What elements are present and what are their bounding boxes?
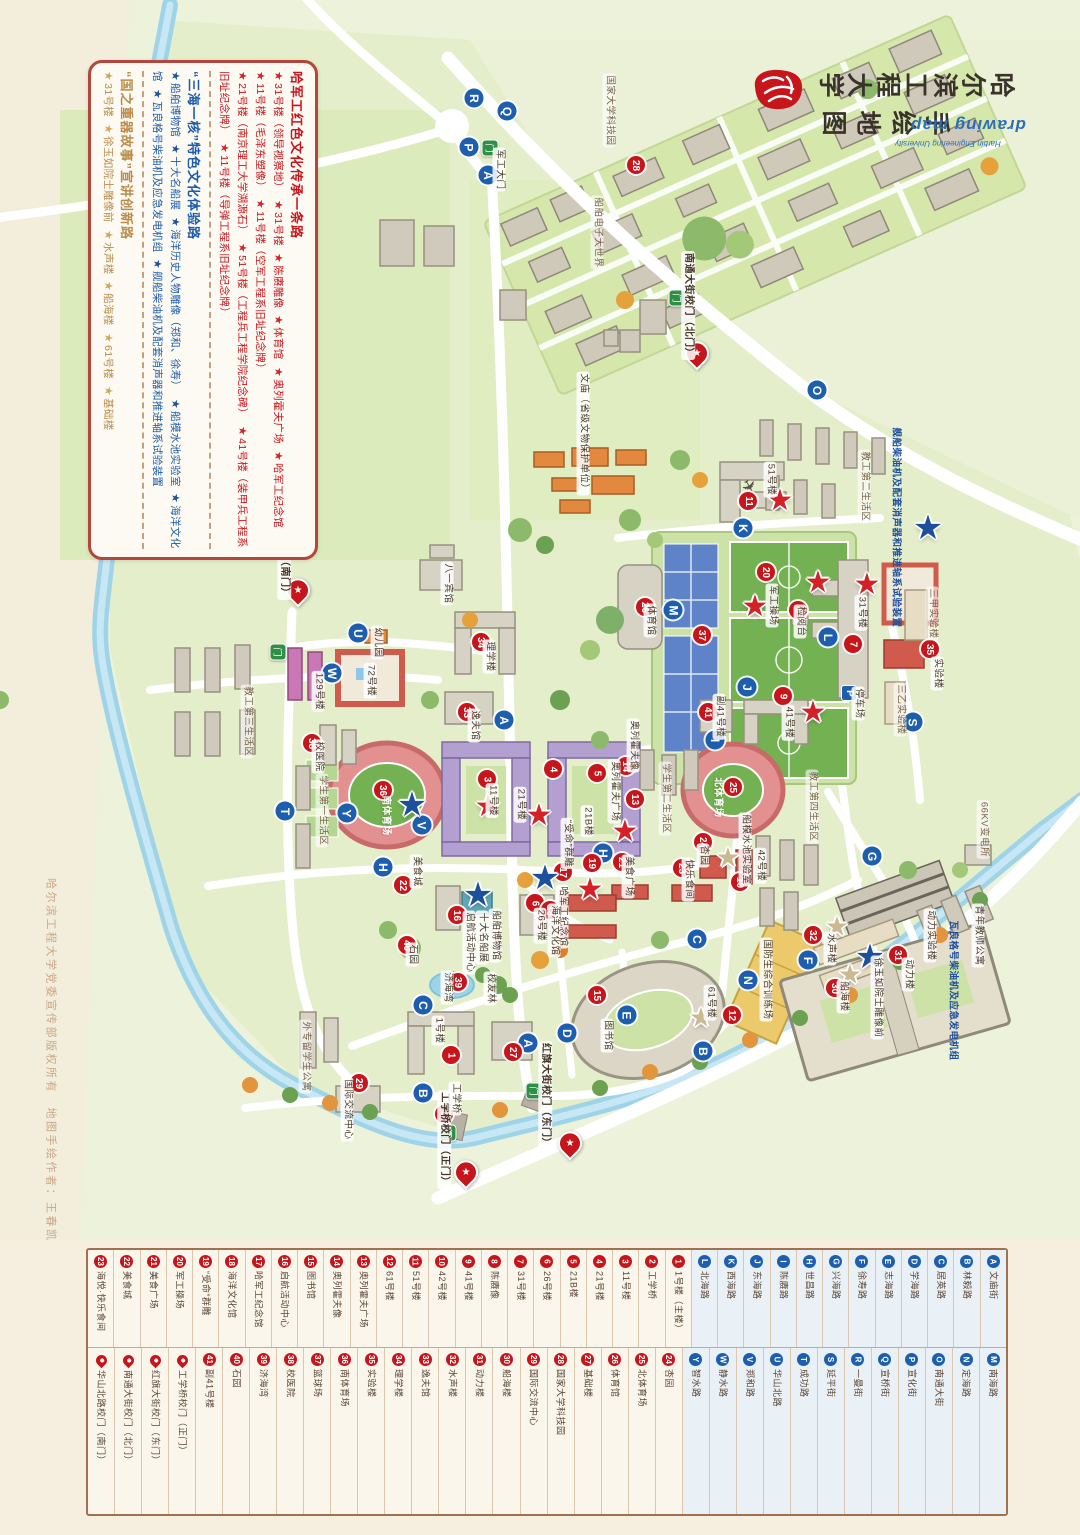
map-label: 快乐食间 xyxy=(682,857,695,906)
star-icon: ★ xyxy=(102,71,114,81)
map-label: 美食城 xyxy=(410,854,423,893)
legend-badge-text: 11 xyxy=(411,1257,420,1265)
map-label: 石园 xyxy=(406,942,419,971)
map-label: 实验楼 xyxy=(931,656,944,695)
gate-label-text: 南通大街校门（北门） xyxy=(681,251,695,360)
legend-number-badge: 39 xyxy=(257,1353,270,1366)
legend-cell-label: 实验楼 xyxy=(366,1369,376,1398)
route-stop: ★61号楼 xyxy=(102,333,114,379)
title-subtitle: Harbin Engineering University xyxy=(895,139,1001,148)
map-label-text: 129号楼 xyxy=(312,671,325,712)
legend-cell: B林毅路 xyxy=(953,1250,979,1347)
map-label: 副41号楼 xyxy=(713,694,726,745)
map-label-text: 工学桥 xyxy=(449,1081,462,1115)
legend-cell-label: 军工操场 xyxy=(174,1271,184,1309)
pin-dot xyxy=(152,1358,158,1364)
map-label-text: 徐玉如院士雕像前 xyxy=(871,955,884,1039)
building-badge-number: 16 xyxy=(452,909,463,920)
map-label-text: 北体育场 xyxy=(711,775,724,819)
map-label: 国防生综合训练场 xyxy=(760,937,773,1026)
star-icon: ★ xyxy=(102,124,114,134)
legend-cell-label: 一曼街 xyxy=(853,1369,863,1398)
legend-cell-label: 文庙街 xyxy=(988,1271,998,1300)
map-label: 十大名船展 xyxy=(476,910,489,969)
route-stop: ★船海楼 xyxy=(102,281,114,326)
map-label-text: 军工操场 xyxy=(766,583,779,627)
legend-cell-label: 31号楼 xyxy=(515,1271,525,1301)
legend-badge-text: 35 xyxy=(367,1355,376,1364)
road-badge-letter: K xyxy=(736,524,750,533)
route-stop: ★21号楼（南京理工大学溯源石） xyxy=(236,71,248,236)
map-label-text: 三甲实验楼 xyxy=(926,586,939,640)
star-icon: ★ xyxy=(254,199,266,209)
legend-cell-label: 北海路 xyxy=(699,1271,709,1300)
legend-cell-label: 理学楼 xyxy=(393,1369,403,1398)
road-badge-letter: W xyxy=(325,667,339,678)
map-key-table: 23海悦·快乐食间22美食城21美食广场20军工操场19“受命”群雕18海洋文化… xyxy=(86,1248,1008,1516)
legend-cell: 32水声楼 xyxy=(438,1348,465,1514)
map-label: 1号楼 xyxy=(432,1016,445,1051)
legend-cell: 23海悦·快乐食间 xyxy=(88,1250,113,1347)
route-stop-label: 31号楼 xyxy=(272,212,284,246)
legend-cell-label: 哈军工纪念馆 xyxy=(253,1271,263,1328)
routes-legend-box: 哈军工红色文化传承一条路★31号楼（领导视察地）★31号楼★陈赓雕像★体育馆★奥… xyxy=(88,60,318,560)
route-star-icon: ★ xyxy=(577,875,604,905)
road-badge-letter: U xyxy=(351,629,365,638)
legend-badge-text: R xyxy=(853,1357,862,1363)
star-icon: ★ xyxy=(151,259,163,269)
legend-number-badge: 14 xyxy=(330,1255,343,1268)
route-section-items: ★船舶博物馆★十大名船展★海洋历史人物雕像（郑和、徐寿）★船模水池实验室★海洋文… xyxy=(149,71,185,549)
map-label-text: 快乐食间 xyxy=(682,857,695,901)
route-stop: ★船舶博物馆 xyxy=(169,71,181,137)
map-label-text: 美食广场 xyxy=(622,854,635,898)
map-label: 水声楼 xyxy=(824,931,837,970)
legend-cell: J东海路 xyxy=(743,1250,769,1347)
pin-dot xyxy=(98,1358,104,1364)
map-label: 船舶电子大世界 xyxy=(591,195,604,274)
map-label: 学生第二生活区 xyxy=(659,761,672,840)
legend-cell: 8陈赓像 xyxy=(481,1250,507,1347)
map-label-text: 61号楼 xyxy=(704,985,717,1021)
building-badge-number: 6 xyxy=(530,900,541,906)
gate-pin-star: ★ xyxy=(294,585,303,596)
legend-number-badge: 2 xyxy=(645,1255,658,1268)
legend-cell: 311号楼 xyxy=(612,1250,638,1347)
legend-cell-label: 徐寿路 xyxy=(857,1271,867,1300)
legend-cell-label: 华山北路校门（南门） xyxy=(96,1370,106,1465)
map-label-text: 校医院 xyxy=(312,739,325,773)
road-badge-letter: B xyxy=(416,1089,430,1098)
route-stop: ★11号楼（空军工程系旧址纪念牌） xyxy=(254,199,266,374)
star-icon: ★ xyxy=(169,217,181,227)
map-label-text: 教工第四生活区 xyxy=(806,769,819,843)
road-badge-letter: J xyxy=(740,684,754,691)
route-stop-label: 海洋历史人物雕像（郑和、徐寿） xyxy=(169,230,181,392)
road-badge-letter: L xyxy=(821,633,835,640)
building-badge-20: 20 xyxy=(757,563,775,581)
route-stop-label: 51号楼（工程兵工程学院纪念碑） xyxy=(236,255,248,418)
route-star-icon: ★ xyxy=(526,801,553,831)
legend-cell-label: 42号楼 xyxy=(437,1271,447,1301)
map-label: 动力楼 xyxy=(902,957,915,996)
legend-number-badge: 40 xyxy=(230,1353,243,1366)
road-badge-letter: A xyxy=(497,716,511,725)
map-label-text: 动力实验楼 xyxy=(924,908,937,962)
building-badge-number: 20 xyxy=(761,566,772,577)
legend-badge-text: 18 xyxy=(227,1257,236,1266)
map-key-row-roads-gates: 华山北路校门（南门）南通大街校门（北门）红旗大街校门（东门）工学桥校门（正门）4… xyxy=(88,1348,1006,1514)
legend-cell-label: 奥列霍夫广场 xyxy=(358,1271,368,1328)
legend-badge-text: 20 xyxy=(175,1257,184,1266)
map-label: 三甲实验楼 xyxy=(926,586,939,645)
legend-badge-text: E xyxy=(884,1259,893,1264)
legend-cell: P宣化街 xyxy=(898,1348,925,1514)
legend-cell: 30船海楼 xyxy=(492,1348,519,1514)
legend-cell-label: 世昌路 xyxy=(804,1271,814,1300)
legend-cell-label: 宣桥街 xyxy=(880,1369,890,1398)
map-label: 51号楼 xyxy=(764,462,777,503)
route-stop-label: 基础楼 xyxy=(102,398,114,430)
legend-number-badge: 38 xyxy=(284,1353,297,1366)
legend-cell-label: 篮球场 xyxy=(312,1369,322,1398)
legend-number-badge: 36 xyxy=(338,1353,351,1366)
legend-cell-label: 陈赓路 xyxy=(778,1271,788,1300)
legend-cell-label: 志海路 xyxy=(883,1271,893,1300)
route-stop: ★徐玉如院士雕像前 xyxy=(102,124,114,223)
map-label-text: 校友林 xyxy=(484,971,497,1005)
legend-cell: 15图书馆 xyxy=(297,1250,323,1347)
building-badge-15: 15 xyxy=(588,986,606,1004)
legend-badge-text: 33 xyxy=(421,1355,430,1364)
legend-badge-text: A xyxy=(989,1259,998,1265)
legend-cell: 22美食城 xyxy=(113,1250,139,1347)
route-stop-label: 瓦良格号柴油机及应急发电机组 xyxy=(151,101,163,252)
star-icon: ★ xyxy=(236,243,248,253)
route-star-icon: ★ xyxy=(805,568,832,598)
legend-cell-label: 26号楼 xyxy=(542,1271,552,1301)
legend-badge-text: 2 xyxy=(647,1259,656,1263)
legend-number-badge: 16 xyxy=(278,1255,291,1268)
legend-badge-text: 30 xyxy=(502,1355,511,1364)
route-stop: ★舰船柴油机及配套消声器和推进轴系试验装置 xyxy=(151,259,163,487)
route-stop-label: 11号楼（毛泽东塑像） xyxy=(254,83,266,192)
map-label: 校友林 xyxy=(484,971,497,1010)
legend-road-badge: Q xyxy=(878,1353,891,1366)
legend-number-badge: 37 xyxy=(311,1353,324,1366)
legend-cell-label: 1号楼（主楼） xyxy=(673,1271,683,1334)
map-label-text: 舰船柴油机及配套消声器和推进轴系试验装置 xyxy=(889,425,902,629)
campus-gate-icon: 门 xyxy=(270,644,287,661)
building-badge-number: 4 xyxy=(548,766,559,772)
legend-cell: 25北体育场 xyxy=(628,1348,655,1514)
legend-cell: W静水路 xyxy=(709,1348,736,1514)
map-label-text: 三乙实验楼 xyxy=(894,682,907,736)
legend-badge-text: W xyxy=(718,1356,727,1364)
route-star-icon: ★ xyxy=(463,878,493,912)
map-key-row-buildings: 23海悦·快乐食间22美食城21美食广场20军工操场19“受命”群雕18海洋文化… xyxy=(88,1250,1006,1348)
road-badge-E: E xyxy=(618,1006,637,1025)
route-stop: ★陈赓雕像 xyxy=(272,253,284,308)
legend-cell-label: 动力楼 xyxy=(474,1369,484,1398)
legend-road-badge: C xyxy=(934,1255,947,1268)
legend-cell: 29国际交流中心 xyxy=(520,1348,547,1514)
building-badge-number: 29 xyxy=(354,1077,365,1088)
route-stop-label: 船模水池实验室 xyxy=(169,411,181,487)
legend-cell: 21美食广场 xyxy=(140,1250,166,1347)
legend-cell-label: 校医院 xyxy=(285,1369,295,1398)
road-badge-Y: Y xyxy=(338,804,357,823)
legend-cell: 626号楼 xyxy=(533,1250,559,1347)
legend-cell-label: 51号楼 xyxy=(410,1271,420,1301)
legend-badge-text: 39 xyxy=(259,1355,268,1364)
legend-cell: 19“受命”群雕 xyxy=(192,1250,218,1347)
legend-badge-text: 4 xyxy=(595,1259,604,1263)
map-label: 66KV变电所 xyxy=(977,800,990,864)
road-badge-Q: Q xyxy=(498,102,517,121)
map-label-text: 1号楼 xyxy=(432,1016,445,1046)
route-star-icon: ★ xyxy=(716,845,740,872)
legend-badge-text: 26 xyxy=(610,1355,619,1364)
legend-cell-label: 兴海路 xyxy=(830,1271,840,1300)
legend-road-badge: B xyxy=(960,1255,973,1268)
route-stop-label: 船舶博物馆 xyxy=(169,83,181,137)
road-badge-letter: R xyxy=(467,94,481,103)
legend-cell-label: 21号楼 xyxy=(594,1271,604,1301)
legend-cell-label: 工学桥 xyxy=(647,1271,657,1300)
building-badge-number: 37 xyxy=(697,629,708,640)
legend-number-badge: 10 xyxy=(435,1255,448,1268)
building-badge-number: 11 xyxy=(742,496,753,507)
building-badge-13: 13 xyxy=(626,790,644,808)
route-section-title: “国之重器故事”宣讲创新路 xyxy=(118,71,137,547)
road-badge-letter: Q xyxy=(500,106,514,115)
legend-cell: 33逸夫馆 xyxy=(411,1348,438,1514)
legend-cell: T成功路 xyxy=(790,1348,817,1514)
legend-badge-text: 9 xyxy=(464,1259,473,1263)
map-label: 129号楼 xyxy=(312,671,325,717)
legend-cell-label: 成功路 xyxy=(799,1369,809,1398)
legend-cell-label: 海洋文化馆 xyxy=(227,1271,237,1319)
legend-road-badge: M xyxy=(987,1353,1000,1366)
legend-cell-label: 红旗大街校门（东门） xyxy=(150,1370,160,1465)
legend-road-badge: E xyxy=(882,1255,895,1268)
road-badge-J: J xyxy=(738,678,757,697)
map-label-text: 国防生综合训练场 xyxy=(760,937,773,1021)
legend-cell: 27基础楼 xyxy=(574,1348,601,1514)
route-stop-label: 61号楼 xyxy=(102,345,114,379)
map-label: 工学桥 xyxy=(449,1081,462,1120)
map-label-text: 幼儿园 xyxy=(371,625,384,659)
title-char: 地 xyxy=(852,110,888,135)
map-label: 检阅台 xyxy=(794,604,807,643)
legend-badge-text: 25 xyxy=(637,1355,646,1364)
map-label: 军工大门 xyxy=(493,147,506,196)
map-label: 舰船柴油机及配套消声器和推进轴系试验装置 xyxy=(889,425,902,634)
routes-legend-content: 哈军工红色文化传承一条路★31号楼（领导视察地）★31号楼★陈赓雕像★体育馆★奥… xyxy=(99,71,307,549)
map-label-text: 瓦良格号柴油机及应急发电机组 xyxy=(946,918,959,1062)
legend-badge-text: 7 xyxy=(516,1259,525,1263)
legend-number-badge: 7 xyxy=(514,1255,527,1268)
legend-number-badge: 8 xyxy=(488,1255,501,1268)
route-section-title: 哈军工红色文化传承一条路 xyxy=(288,71,307,547)
legend-cell: L北海路 xyxy=(691,1250,717,1347)
route-stop: ★海洋历史人物雕像（郑和、徐寿） xyxy=(169,217,181,391)
star-icon: ★ xyxy=(272,200,284,210)
map-label-text: 72号楼 xyxy=(364,663,377,699)
legend-number-badge: 41 xyxy=(203,1353,216,1366)
legend-badge-text: I xyxy=(779,1260,788,1262)
legend-number-badge: 22 xyxy=(120,1255,133,1268)
building-badge-number: 15 xyxy=(592,989,603,1000)
star-icon: ★ xyxy=(169,493,181,503)
star-icon: ★ xyxy=(236,426,248,436)
star-icon: ★ xyxy=(272,367,284,377)
map-label: 杏园 xyxy=(697,843,710,872)
legend-badge-text: G xyxy=(831,1258,840,1264)
legend-cell-label: “受命”群雕 xyxy=(200,1271,210,1316)
star-icon: ★ xyxy=(169,399,181,409)
map-label: 青年教师公寓 xyxy=(972,903,985,972)
route-section-items: ★31号楼★徐玉如院士雕像前★水声楼★船海楼★61号楼★基础楼 xyxy=(100,71,118,549)
legend-cell: 521B楼 xyxy=(560,1250,586,1347)
legend-cell: 1261号楼 xyxy=(376,1250,402,1347)
road-badge-B: B xyxy=(694,1042,713,1061)
map-label: 理学楼 xyxy=(483,639,496,678)
map-label-text: 11号楼 xyxy=(486,783,499,818)
road-badge-letter: G xyxy=(865,851,879,860)
legend-badge-text: 29 xyxy=(529,1355,538,1364)
legend-road-badge: T xyxy=(797,1353,810,1366)
map-label-text: 学生第一生活区 xyxy=(316,773,329,847)
legend-cell: 34理学楼 xyxy=(384,1348,411,1514)
route-stop-label: 31号楼 xyxy=(102,83,114,117)
route-stop: ★奥列霍夫广场 xyxy=(272,367,284,444)
map-label-text: 停车场 xyxy=(852,686,865,720)
building-badge-number: 1 xyxy=(446,1052,457,1058)
map-label-text: 图书馆 xyxy=(601,1018,614,1052)
route-stop: ★31号楼（领导视察地） xyxy=(272,71,284,193)
legend-road-badge: N xyxy=(960,1353,973,1366)
legend-badge-text: 40 xyxy=(232,1355,241,1364)
legend-badge-text: F xyxy=(857,1259,866,1264)
legend-road-badge: G xyxy=(829,1255,842,1268)
legend-cell-label: 图书馆 xyxy=(305,1271,315,1300)
legend-number-badge: 9 xyxy=(462,1255,475,1268)
legend-badge-text: 1 xyxy=(674,1259,683,1263)
building-badge-number: 9 xyxy=(778,693,789,699)
route-stop: ★51号楼（工程兵工程学院纪念碑） xyxy=(236,243,248,419)
legend-badge-text: 32 xyxy=(448,1355,457,1364)
legend-road-badge: J xyxy=(750,1255,763,1268)
legend-badge-text: M xyxy=(989,1356,998,1363)
route-section: “国之重器故事”宣讲创新路★31号楼★徐玉如院士雕像前★水声楼★船海楼★61号楼… xyxy=(100,71,144,549)
legend-number-badge: 30 xyxy=(500,1353,513,1366)
route-stop-label: 11号楼（导弹工程系旧址纪念牌） xyxy=(218,155,230,318)
map-label: 体育馆 xyxy=(644,603,657,642)
route-section-items: ★31号楼（领导视察地）★31号楼★陈赓雕像★体育馆★奥列霍夫广场★哈军工纪念馆… xyxy=(216,71,288,549)
building-badge-number: 5 xyxy=(592,770,603,776)
legend-badge-text: 10 xyxy=(437,1257,446,1266)
route-stop: ★31号楼 xyxy=(102,71,114,117)
map-label: 21B楼 xyxy=(581,805,594,842)
legend-badge-text: 36 xyxy=(340,1355,349,1364)
building-badge-7: 7 xyxy=(844,635,862,653)
legend-badge-text: N xyxy=(962,1357,971,1363)
legend-number-badge: 12 xyxy=(383,1255,396,1268)
legend-number-badge: 19 xyxy=(199,1255,212,1268)
legend-badge-text: 19 xyxy=(201,1257,210,1266)
legend-cell: 18海洋文化馆 xyxy=(218,1250,244,1347)
map-label: 停车场 xyxy=(852,686,865,725)
legend-cell-label: 石园 xyxy=(231,1369,241,1388)
map-label-text: 军工大门 xyxy=(493,147,506,191)
route-stop: ★水声楼 xyxy=(102,230,114,275)
route-stop: ★体育馆 xyxy=(272,315,284,360)
legend-badge-text: B xyxy=(962,1259,971,1265)
road-badge-letter: A xyxy=(521,1039,535,1048)
legend-badge-text: S xyxy=(826,1357,835,1362)
map-label-text: 国家大学科技园 xyxy=(603,73,616,147)
legend-number-badge: 17 xyxy=(252,1255,265,1268)
building-badge-number: 25 xyxy=(728,781,739,792)
map-label: 船模水池实验室 xyxy=(739,812,752,891)
route-stop: ★十大名船展 xyxy=(169,144,181,210)
route-stop-label: 船海楼 xyxy=(102,293,114,325)
legend-badge-text: 17 xyxy=(254,1257,263,1266)
legend-number-badge: 31 xyxy=(473,1353,486,1366)
route-stop-label: 哈军工纪念馆 xyxy=(272,463,284,528)
legend-number-badge: 24 xyxy=(662,1353,675,1366)
map-label-text: 教工第三生活区 xyxy=(241,684,254,758)
map-label: 南体育场 xyxy=(379,793,392,842)
legend-cell-label: 陈赓像 xyxy=(489,1271,499,1300)
star-icon: ★ xyxy=(102,281,114,291)
legend-cell-label: 美食广场 xyxy=(148,1271,158,1309)
road-badge-letter: P xyxy=(462,143,476,151)
legend-road-badge: I xyxy=(777,1255,790,1268)
legend-badge-text: 13 xyxy=(359,1257,368,1266)
legend-cell: 31动力楼 xyxy=(465,1348,492,1514)
map-label: 31号楼 xyxy=(855,595,868,636)
legend-badge-text: 37 xyxy=(313,1355,322,1364)
legend-number-badge: 26 xyxy=(608,1353,621,1366)
legend-badge-text: 6 xyxy=(542,1259,551,1263)
legend-number-badge: 33 xyxy=(419,1353,432,1366)
road-badge-letter: S xyxy=(906,718,920,726)
map-label: 11号楼 xyxy=(486,783,499,823)
legend-cell: K西海路 xyxy=(717,1250,743,1347)
map-label-text: 杏园 xyxy=(697,843,710,867)
legend-cell-label: 美食城 xyxy=(122,1271,132,1300)
map-label-text: 美食城 xyxy=(410,854,423,888)
legend-road-badge: Y xyxy=(689,1353,702,1366)
legend-cell-label: 体育馆 xyxy=(609,1369,619,1398)
legend-badge-text: 14 xyxy=(332,1257,341,1266)
map-label-text: 动力楼 xyxy=(902,957,915,991)
map-label: 26号楼 xyxy=(534,908,547,949)
building-badge-5: 5 xyxy=(588,764,606,782)
legend-cell: 37篮球场 xyxy=(303,1348,330,1514)
route-stop: ★哈军工纪念馆 xyxy=(272,451,284,528)
star-icon: ★ xyxy=(102,230,114,240)
road-badge-letter: D xyxy=(560,1029,574,1038)
legend-cell-label: 基础楼 xyxy=(582,1369,592,1398)
map-title: 哈尔滨工程大学 手绘地图 drawing map Harbin Engineer… xyxy=(735,55,1035,165)
legend-number-badge: 1 xyxy=(672,1255,685,1268)
gate-pin-star: ★ xyxy=(566,1138,575,1149)
legend-badge-text: Q xyxy=(880,1356,889,1362)
